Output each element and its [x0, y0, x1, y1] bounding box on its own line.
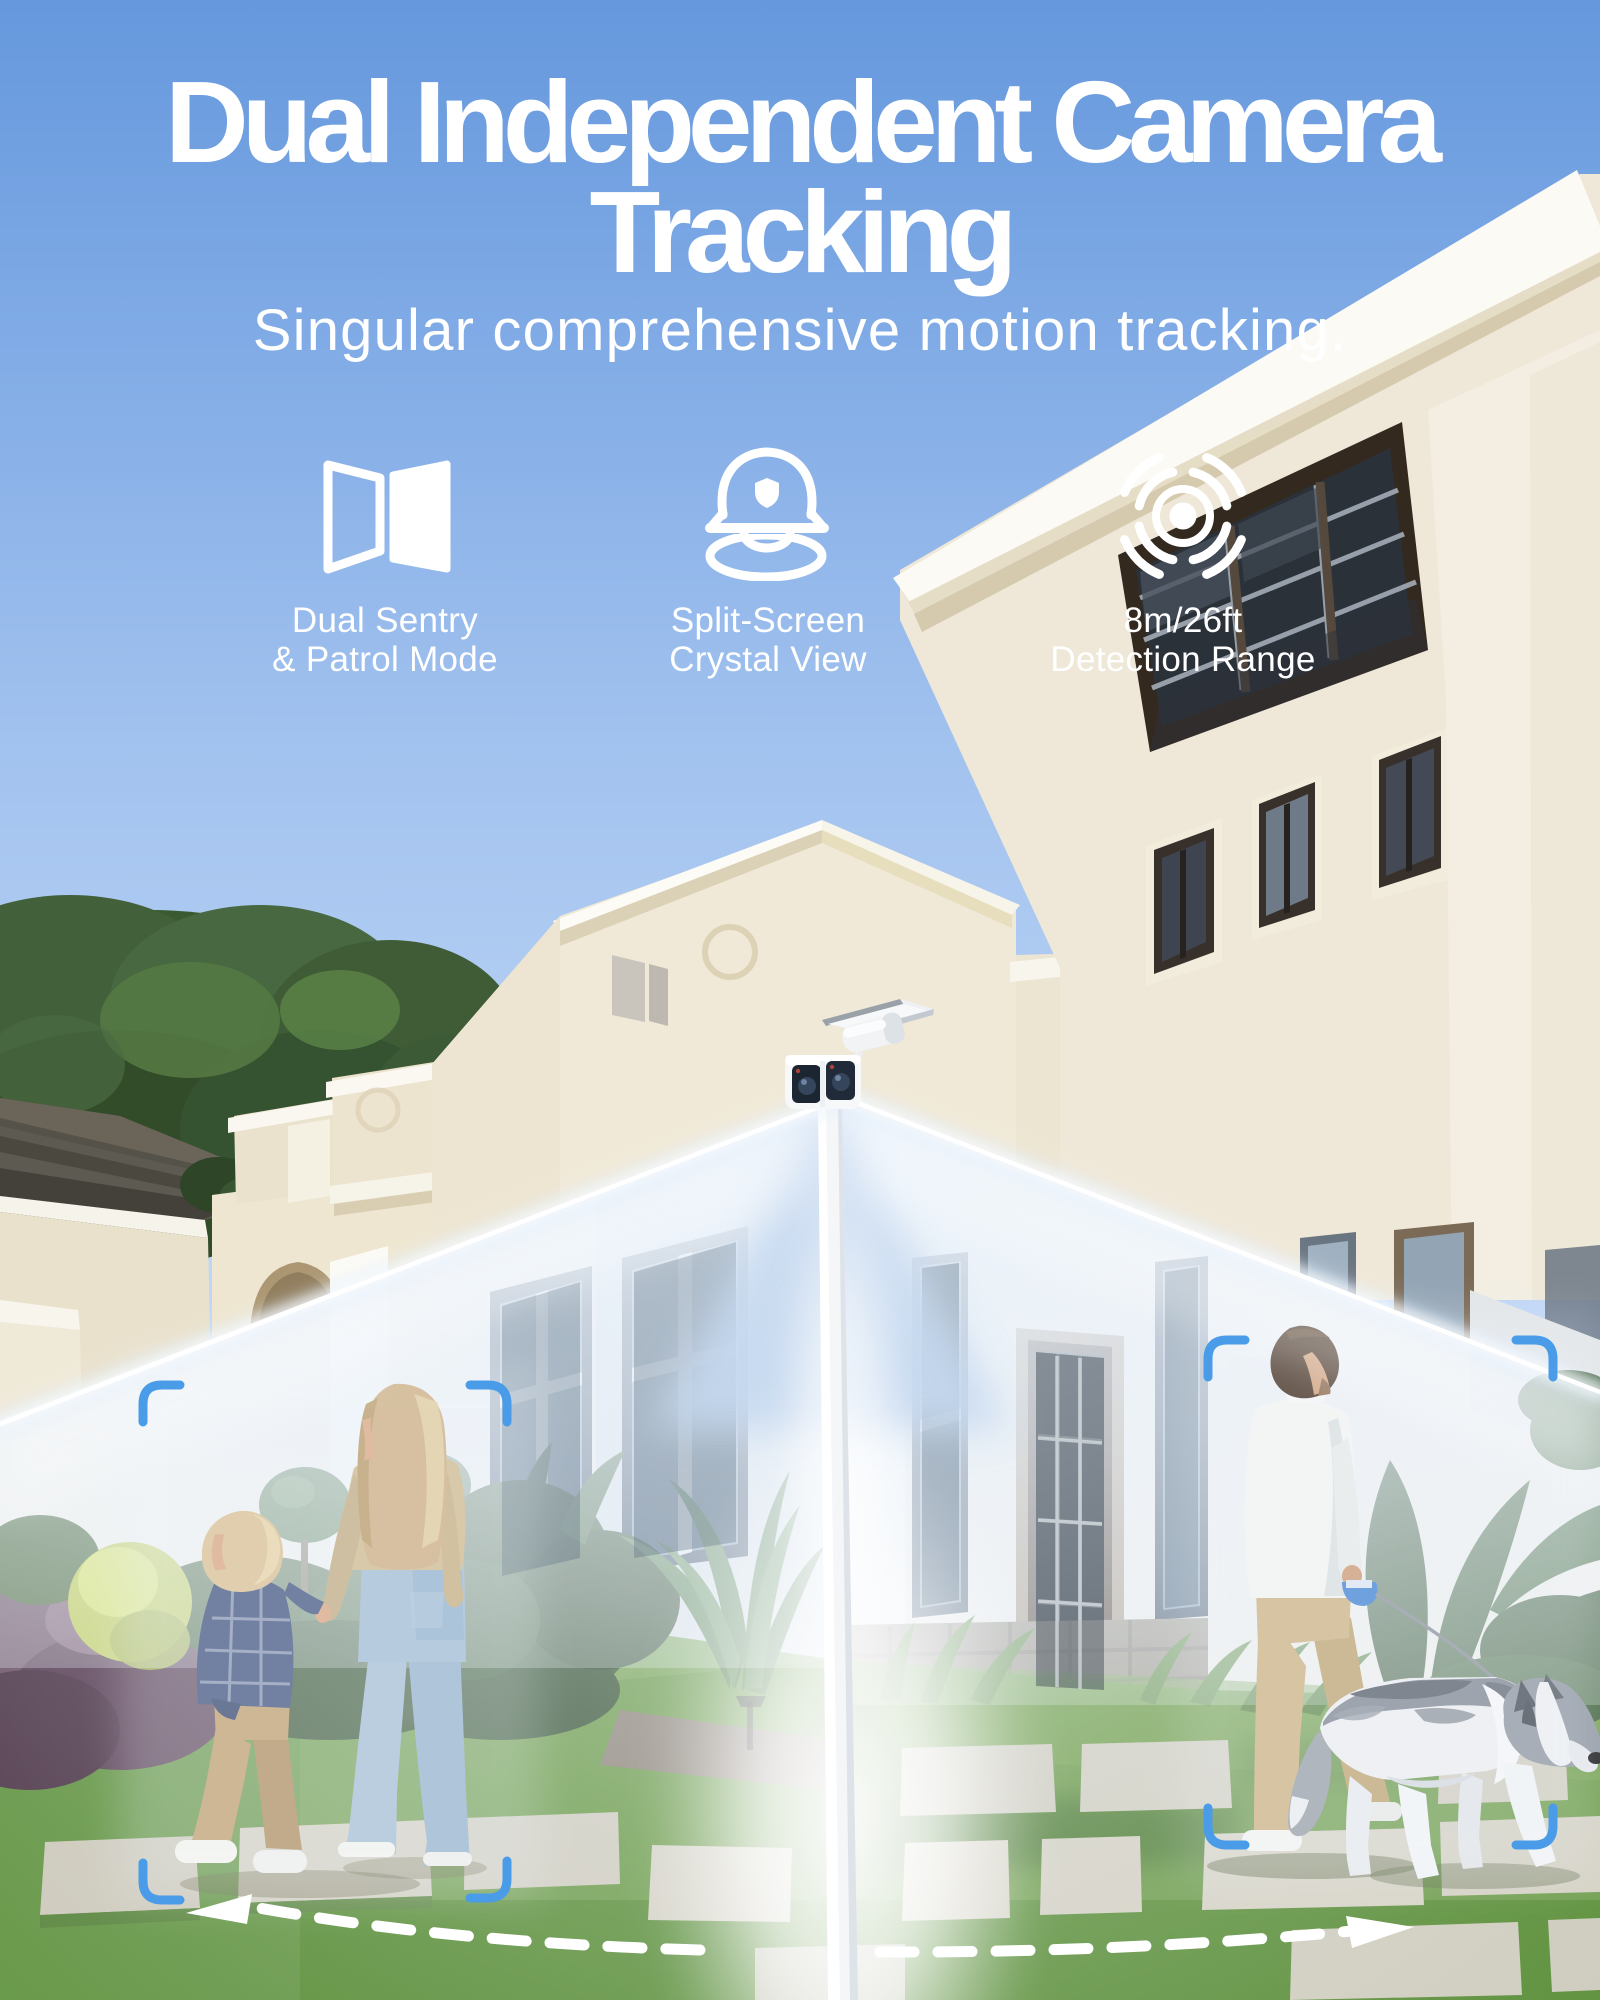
svg-text:Tracking: Tracking — [589, 167, 1010, 297]
svg-text:Split-Screen: Split-Screen — [671, 601, 865, 640]
svg-text:& Patrol Mode: & Patrol Mode — [272, 640, 498, 679]
svg-text:Dual Sentry: Dual Sentry — [292, 601, 478, 640]
svg-text:Singular comprehensive motion: Singular comprehensive motion tracking. — [253, 298, 1348, 363]
svg-text:Crystal View: Crystal View — [669, 640, 867, 679]
svg-text:8m/26ft: 8m/26ft — [1124, 601, 1243, 640]
svg-text:Detection Range: Detection Range — [1050, 640, 1315, 679]
